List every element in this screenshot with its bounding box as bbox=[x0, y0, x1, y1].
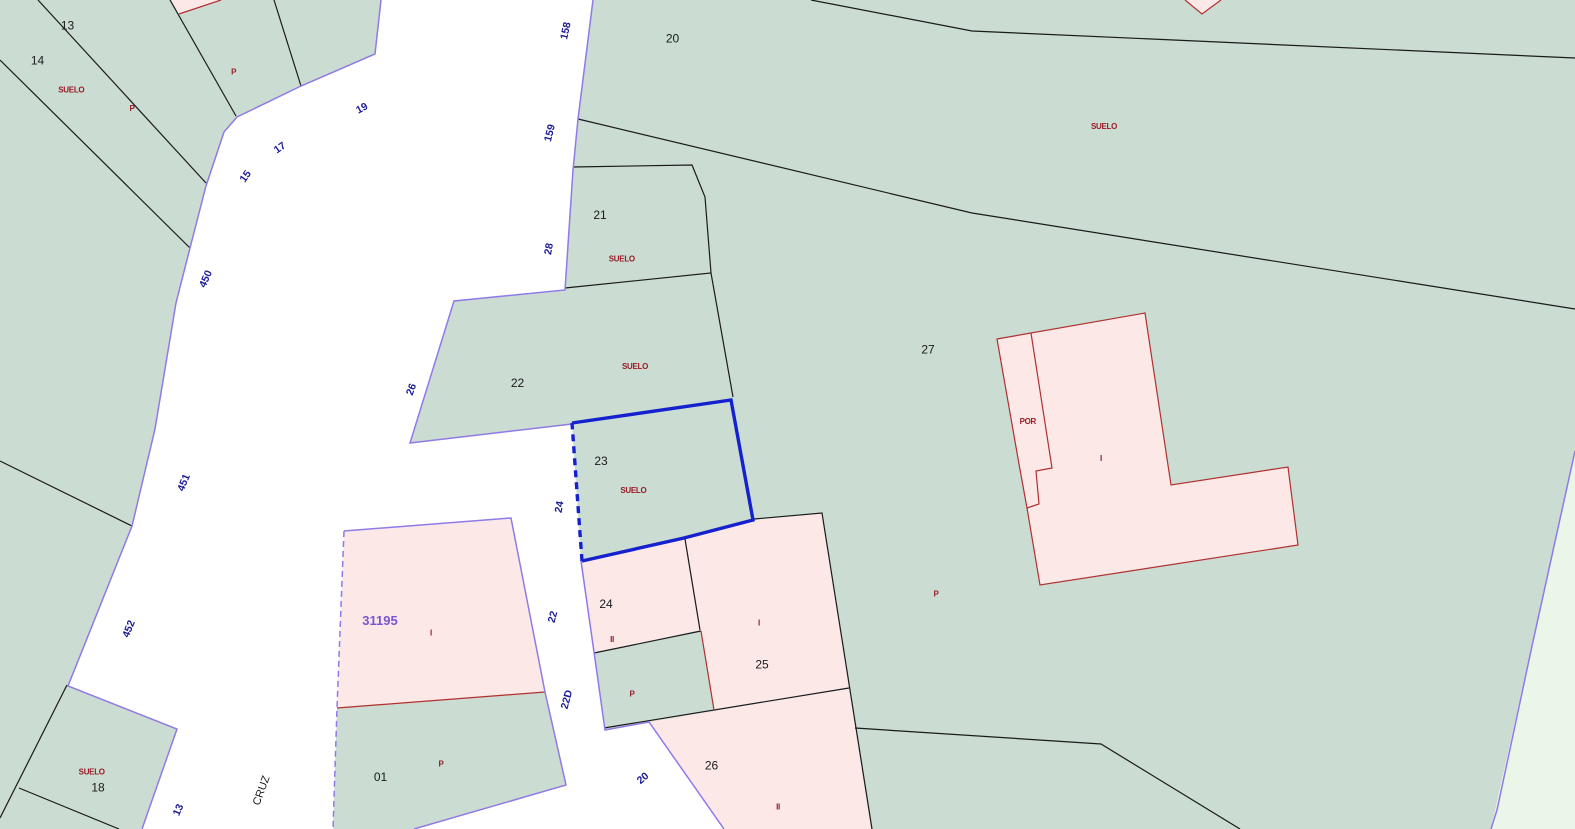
svg-text:24: 24 bbox=[553, 500, 567, 514]
svg-text:SUELO: SUELO bbox=[79, 768, 105, 777]
svg-text:21: 21 bbox=[593, 208, 607, 222]
svg-text:II: II bbox=[610, 635, 614, 644]
svg-text:25: 25 bbox=[755, 658, 769, 672]
svg-text:20: 20 bbox=[666, 32, 680, 46]
svg-text:18: 18 bbox=[91, 781, 105, 795]
svg-text:SUELO: SUELO bbox=[620, 486, 646, 495]
svg-text:SUELO: SUELO bbox=[58, 85, 84, 94]
svg-text:SUELO: SUELO bbox=[1091, 122, 1117, 131]
svg-text:26: 26 bbox=[705, 759, 719, 773]
svg-text:01: 01 bbox=[374, 770, 388, 784]
svg-text:14: 14 bbox=[31, 54, 45, 68]
svg-text:SUELO: SUELO bbox=[622, 362, 648, 371]
svg-text:I: I bbox=[1100, 454, 1102, 463]
svg-text:13: 13 bbox=[61, 19, 75, 33]
svg-text:POR: POR bbox=[1020, 417, 1037, 426]
svg-text:31195: 31195 bbox=[362, 613, 397, 628]
svg-text:II: II bbox=[776, 803, 780, 812]
svg-text:SUELO: SUELO bbox=[609, 254, 635, 263]
svg-text:I: I bbox=[430, 629, 432, 638]
svg-text:27: 27 bbox=[921, 343, 935, 357]
svg-text:I: I bbox=[758, 619, 760, 628]
svg-text:23: 23 bbox=[594, 454, 608, 468]
svg-text:22: 22 bbox=[511, 376, 525, 390]
svg-text:28: 28 bbox=[542, 242, 556, 256]
svg-text:24: 24 bbox=[599, 597, 613, 611]
